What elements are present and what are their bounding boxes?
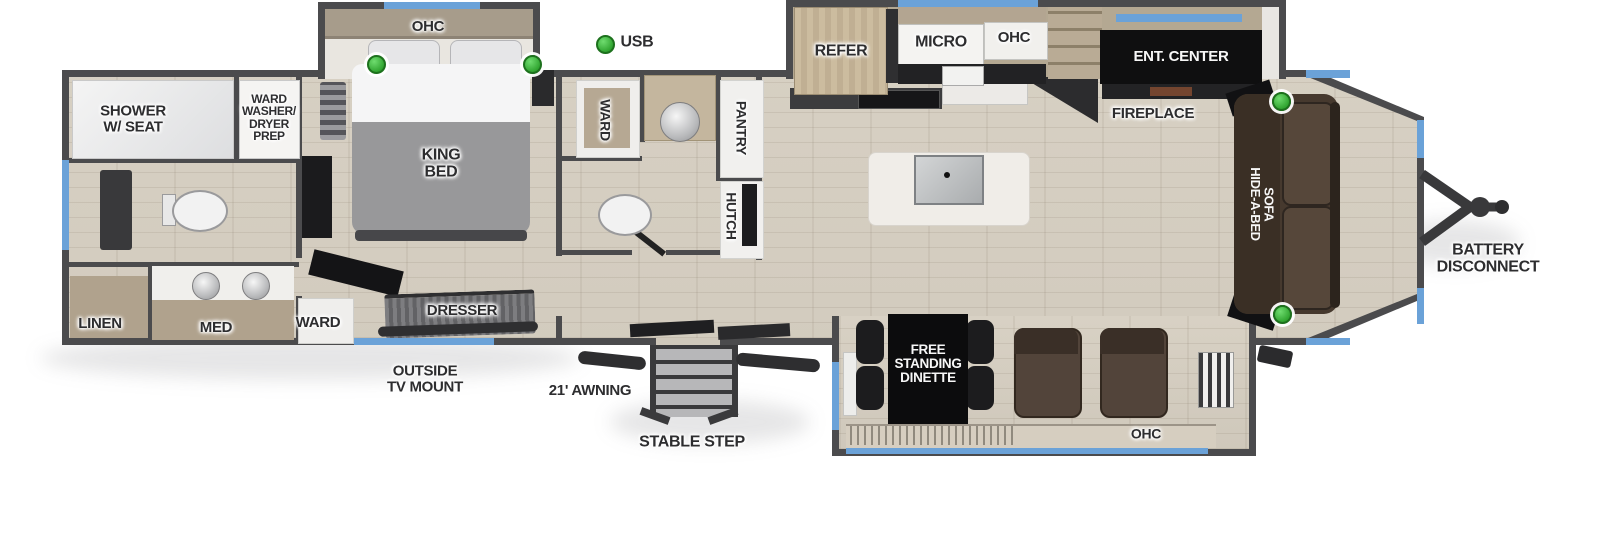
island-faucet [944,172,950,178]
bedroom-tv-panel [302,156,332,238]
window-kitchen-slide [898,0,1038,7]
usb-dot-bed-right [523,55,542,74]
exterior-grab-handle [1257,345,1294,369]
micro-label: MICRO [915,35,967,52]
awning-label: 21' AWNING [549,383,632,399]
sofa-cushion-top [1282,102,1334,206]
recliner-1-back [1014,328,1078,354]
bedroom-ward-label: WARD [296,315,341,331]
hutch-label: HUTCH [724,192,739,240]
refer-label: REFER [815,44,868,61]
window-bedroom-bottom [354,338,494,345]
wall-bedroom-midbath [556,70,562,256]
bed-step-stool [320,82,346,140]
window-front-right-upper [1417,120,1424,158]
dinette-chair-1 [856,320,884,364]
king-bed-footboard [355,230,527,241]
slide-end-cabinet [1262,7,1279,79]
kitchen-ohc-label: OHC [998,30,1030,46]
dresser-label: DRESSER [427,303,497,319]
med-sink-left [192,272,220,300]
sofa-front-edge [1330,102,1340,308]
shower-label: SHOWER W/ SEAT [100,103,166,134]
kitchen-divider-panel [886,9,898,83]
living-ohc-louvers [850,426,1014,445]
window-ent-center [1116,14,1242,22]
outside-tv-mount-label: OUTSIDE TV MOUNT [387,363,463,394]
dinette-chair-4 [966,366,994,410]
fireplace-flame [1150,87,1192,96]
dinette-chair-2 [856,366,884,410]
sofa-cushion-bottom [1282,206,1334,310]
ent-center-label: ENT. CENTER [1133,49,1228,65]
window-bedroom-slide [384,2,480,9]
stable-step-stairs [650,345,738,417]
kitchen-sink-cover [942,66,984,86]
wall-bath-bottom-left [560,250,632,255]
usb-dot-sofa-top [1272,92,1291,111]
window-front-bottom [1306,338,1350,345]
window-rear-left [62,160,69,250]
magazine-rack [1198,352,1234,408]
hide-a-bed-sofa-label: HIDE-A-BED SOFA [1248,167,1275,241]
recliner-2-back [1100,328,1164,354]
dinette-side-panel [843,352,857,416]
dinette-label: FREE STANDING DINETTE [894,343,961,385]
usb-legend-dot [596,35,615,54]
window-dinette-left [832,362,839,430]
kitchen-upper-cabinet [898,7,1046,23]
usb-dot-bed-left [367,55,386,74]
king-bed-label: KING BED [422,147,461,180]
usb-legend-label: USB [621,35,654,52]
rv-floorplan: USB SHOWER W/ SEAT WARD WASHER/ DRYER PR… [0,0,1600,548]
kitchen-shelf-cabinet [1048,7,1102,79]
window-dinette-bottom [846,448,1208,454]
awning-arm-left [578,350,647,370]
stable-step-label: STABLE STEP [639,435,745,452]
island-sink [914,155,984,205]
midbath-ward-label: WARD [598,99,613,141]
hutch-counter [742,184,757,246]
midbath-sink [660,102,700,142]
med-sink-right [242,272,270,300]
linen-label: LINEN [78,316,122,332]
midbath-toilet [598,194,652,236]
med-counter [152,266,294,300]
awning-arm-right [736,352,821,372]
window-front-top [1306,70,1350,78]
bedroom-ohc-label: OHC [412,19,444,35]
window-front-right-lower [1417,288,1424,324]
dinette-chair-3 [966,320,994,364]
rear-toilet [172,190,228,232]
living-ohc-label: OHC [1131,427,1161,442]
fireplace-label: FIREPLACE [1112,106,1194,122]
med-label: MED [200,320,232,336]
battery-disconnect-label: BATTERY DISCONNECT [1437,242,1540,275]
rear-bath-wardrobe-panel [100,170,132,250]
ward-washer-dryer-label: WARD WASHER/ DRYER PREP [242,93,296,143]
bed-nightstand [532,70,554,106]
usb-dot-sofa-bottom [1273,305,1292,324]
pantry-label: PANTRY [734,101,749,155]
wall-bedroom-midbath-lower [556,316,562,345]
